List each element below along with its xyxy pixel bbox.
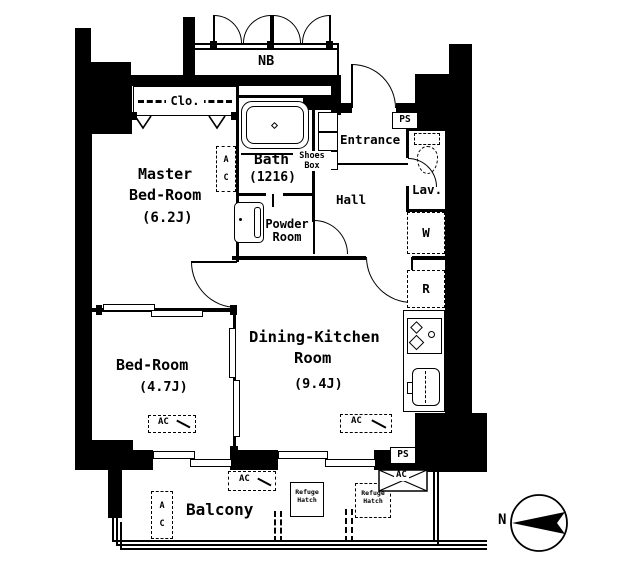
- wall: [108, 470, 122, 518]
- powder-room-label: Powder Room: [258, 218, 316, 244]
- shoes-line1: Shoes: [293, 151, 331, 161]
- refuge-hatch-1: Refuge Hatch: [290, 482, 324, 517]
- dk-ac-label: AC: [351, 417, 362, 427]
- washer-label: W: [422, 226, 430, 240]
- stove-burner-small: [428, 331, 435, 338]
- washbasin-faucet: [239, 218, 242, 221]
- closet: Clo.: [133, 86, 237, 116]
- sliding-door-panel: [151, 310, 203, 317]
- sliding-door-panel: [233, 380, 240, 437]
- balcony-ac-box-left: A C: [151, 491, 173, 539]
- bath-size: (1216): [249, 171, 296, 185]
- compass-n-label: N: [498, 513, 506, 528]
- compass: [508, 492, 570, 554]
- window-bedroom: [190, 459, 232, 467]
- wall: [183, 17, 195, 75]
- bedroom-size: (4.7J): [139, 380, 188, 395]
- dk-label: Dining-Kitchen: [249, 329, 380, 346]
- closet-label: Clo.: [166, 94, 205, 108]
- shoes-box-label: Shoes Box: [293, 151, 331, 171]
- balcony-ac-unit-label: AC: [394, 471, 409, 481]
- powder-line2: Room: [258, 231, 316, 244]
- nb-door-arc: [302, 15, 330, 43]
- lav-label: Lav.: [412, 183, 442, 197]
- ps-box-bottom: PS: [390, 447, 416, 464]
- washer-box: W: [407, 212, 445, 254]
- balcony-ac-box-top: AC: [228, 471, 276, 491]
- powder-door-arc: [314, 220, 348, 254]
- window-dk: [325, 459, 376, 467]
- wall-lav-left: [406, 128, 409, 158]
- ac-diagonal: [372, 419, 387, 428]
- wall: [415, 74, 472, 130]
- balcony-edge: [120, 548, 487, 550]
- hatch-line2: Hatch: [356, 497, 390, 505]
- balcony-edge-left: [120, 522, 122, 550]
- hinge: [231, 112, 237, 120]
- master-ac-box: A C: [216, 146, 236, 192]
- nb-door-arc: [273, 15, 301, 43]
- balcony-partition: [345, 509, 353, 542]
- wall: [449, 44, 472, 76]
- ac-diagonal: [258, 478, 272, 486]
- ac-letter: C: [159, 519, 164, 529]
- fridge-box: R: [407, 270, 445, 308]
- sliding-door-panel: [229, 328, 236, 378]
- entrance-door-arc: [352, 64, 396, 108]
- ac-letter: A: [223, 155, 228, 165]
- balcony-ac-top-label: AC: [239, 475, 250, 485]
- wall-hall-bottom: [412, 256, 445, 260]
- window-bedroom: [153, 451, 195, 459]
- hatch-line1: Refuge: [291, 488, 323, 496]
- shoes-line2: Box: [293, 161, 331, 171]
- entrance-door-leaf: [351, 64, 353, 108]
- nb-label: NB: [258, 54, 274, 69]
- ps-top-label: PS: [399, 115, 410, 125]
- hanger-icon: [134, 115, 152, 130]
- toilet-tank: [414, 133, 440, 145]
- bedroom-label: Bed-Room: [116, 357, 188, 374]
- floor-plan-canvas: NB Clo. Master Bed-Room (6.2J) A C: [0, 0, 640, 569]
- nb-door-leaf: [272, 15, 274, 43]
- wall: [92, 86, 132, 134]
- bedroom-ac-label: AC: [158, 418, 169, 428]
- sink-divider: [425, 371, 426, 403]
- master-door-leaf: [191, 261, 237, 263]
- hinge: [230, 446, 238, 452]
- sink-icon: [412, 368, 440, 406]
- compass-needle: [512, 512, 565, 534]
- balcony-edge-right: [433, 470, 435, 542]
- master-bedroom-label2: Bed-Room: [129, 187, 201, 204]
- balcony-label: Balcony: [186, 501, 253, 519]
- window-dk: [278, 451, 328, 459]
- wall: [75, 80, 92, 470]
- ac-diagonal: [177, 420, 191, 428]
- toilet-bowl: [417, 146, 438, 174]
- dk-door-arc: [366, 257, 412, 303]
- balcony-edge-left: [112, 514, 114, 542]
- refuge-hatch-1-label: Refuge Hatch: [291, 488, 323, 505]
- balcony-edge-right: [437, 470, 439, 546]
- ps-box-top: PS: [392, 112, 418, 129]
- nb-door-leaf: [213, 15, 215, 43]
- balcony-partition: [274, 511, 282, 542]
- fridge-label: R: [422, 282, 430, 296]
- wall-bath-top: [236, 95, 315, 98]
- wall-bath-powder: [236, 193, 266, 196]
- nb-door-arc: [243, 15, 271, 43]
- wall: [445, 130, 472, 413]
- hall-label: Hall: [336, 193, 366, 207]
- sliding-door-panel: [103, 304, 155, 311]
- ac-letter: C: [223, 173, 228, 183]
- hinge: [96, 305, 102, 315]
- entrance-label: Entrance: [340, 133, 400, 147]
- balcony-edge: [112, 540, 487, 542]
- master-bedroom-size: (6.2J): [142, 211, 193, 226]
- bedroom-ac-box: AC: [148, 415, 196, 433]
- wall: [91, 450, 153, 470]
- nb-door-arc: [214, 15, 242, 43]
- wall-hall-bottom: [232, 256, 366, 260]
- balcony-edge-left: [116, 518, 118, 546]
- ac-letter: A: [159, 501, 164, 511]
- dk-ac-box: AC: [340, 414, 392, 433]
- nb-right-line: [337, 43, 339, 77]
- dk-size: (9.4J): [294, 377, 343, 392]
- wall: [230, 450, 278, 470]
- nb-door-leaf: [329, 15, 331, 43]
- sink-faucet: [407, 382, 413, 394]
- ps-bottom-label: PS: [397, 450, 408, 460]
- wall-bath-powder: [283, 193, 315, 196]
- bath-door-leaf: [272, 194, 274, 207]
- wall: [331, 75, 341, 115]
- wall: [415, 413, 487, 472]
- hatch-line2: Hatch: [291, 496, 323, 504]
- wall: [91, 75, 331, 86]
- dk-label2: Room: [294, 350, 331, 367]
- shoes-cabinet-shelf: [318, 131, 338, 133]
- balcony-edge: [116, 544, 487, 546]
- master-door-arc: [191, 262, 237, 308]
- hanger-icon: [208, 115, 226, 130]
- master-bedroom-label: Master: [138, 166, 192, 183]
- bath-label: Bath: [254, 153, 289, 169]
